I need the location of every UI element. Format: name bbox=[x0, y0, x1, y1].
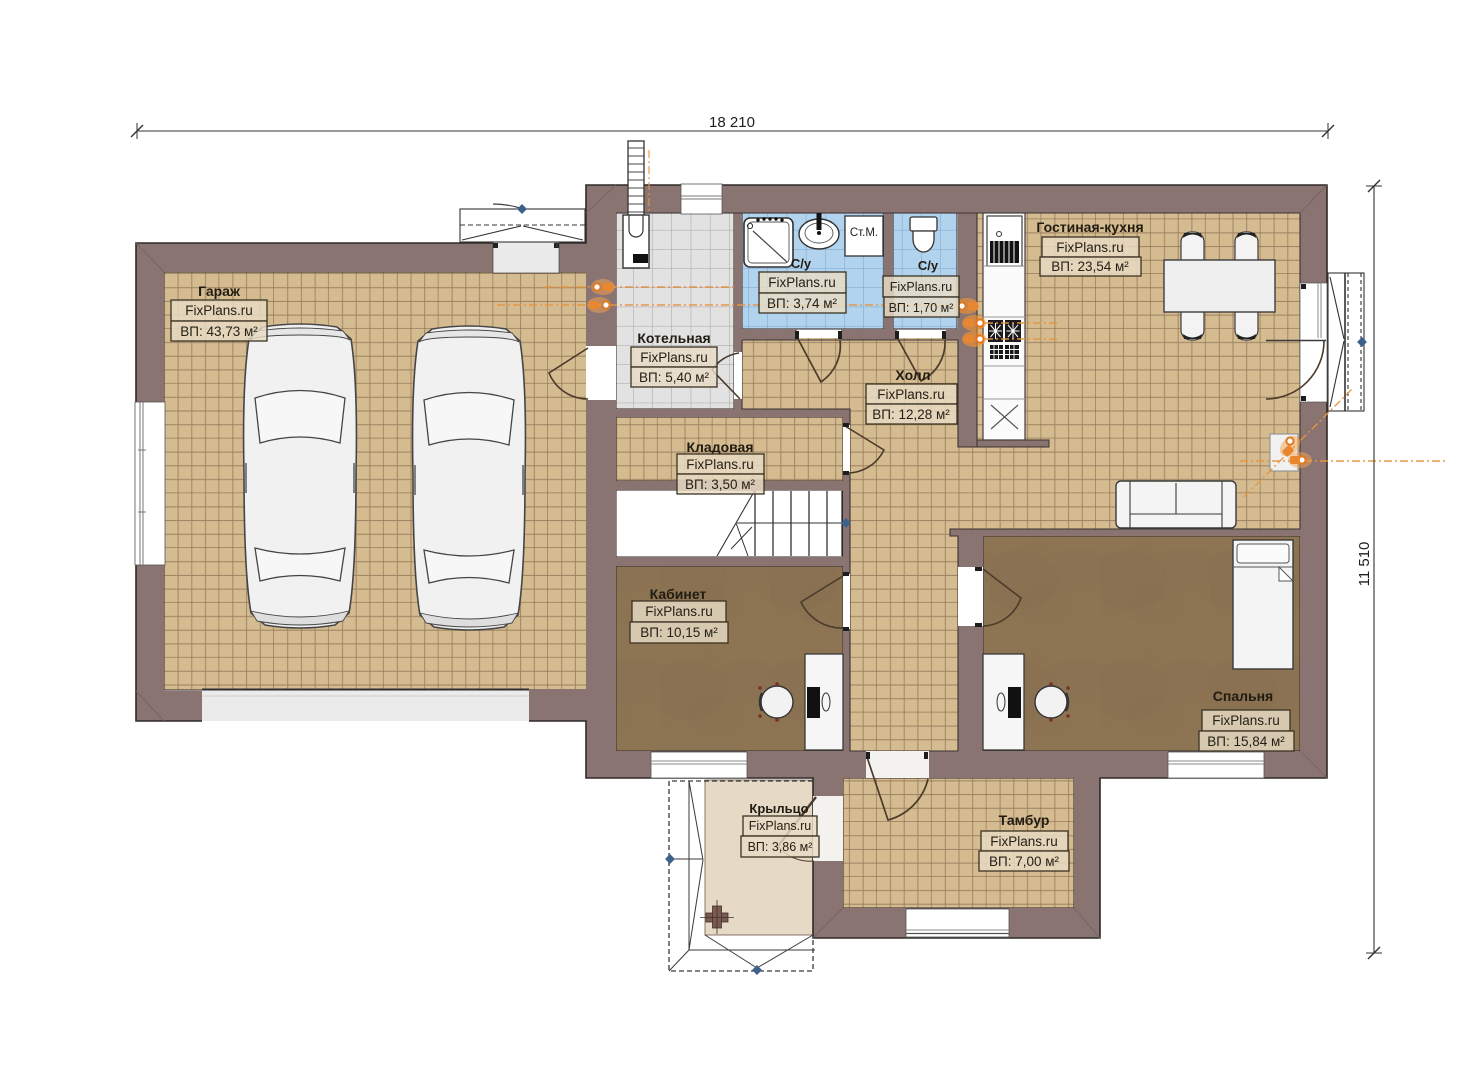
svg-text:Крыльцо: Крыльцо bbox=[749, 801, 808, 816]
svg-text:FixPlans.ru: FixPlans.ru bbox=[1212, 713, 1280, 728]
svg-text:Тамбур: Тамбур bbox=[999, 812, 1050, 828]
svg-text:FixPlans.ru: FixPlans.ru bbox=[640, 350, 708, 365]
svg-text:ВП: 5,40 м²: ВП: 5,40 м² bbox=[639, 370, 710, 385]
svg-text:С/у: С/у bbox=[918, 258, 939, 273]
svg-text:ВП: 23,54 м²: ВП: 23,54 м² bbox=[1051, 259, 1129, 274]
svg-text:ВП: 15,84 м²: ВП: 15,84 м² bbox=[1207, 734, 1285, 749]
svg-text:Кабинет: Кабинет bbox=[650, 586, 707, 602]
svg-text:FixPlans.ru: FixPlans.ru bbox=[768, 275, 836, 290]
svg-text:Спальня: Спальня bbox=[1213, 688, 1273, 704]
svg-text:18 210: 18 210 bbox=[709, 114, 755, 131]
svg-text:Кладовая: Кладовая bbox=[686, 439, 753, 455]
svg-text:ВП: 43,73 м²: ВП: 43,73 м² bbox=[180, 324, 258, 339]
svg-text:Гараж: Гараж bbox=[198, 283, 241, 299]
svg-text:ВП: 3,74 м²: ВП: 3,74 м² bbox=[767, 296, 838, 311]
svg-text:ВП: 10,15 м²: ВП: 10,15 м² bbox=[640, 625, 718, 640]
svg-text:Ст.М.: Ст.М. bbox=[850, 227, 878, 239]
svg-text:ВП: 7,00 м²: ВП: 7,00 м² bbox=[989, 854, 1060, 869]
svg-text:FixPlans.ru: FixPlans.ru bbox=[877, 387, 945, 402]
svg-text:FixPlans.ru: FixPlans.ru bbox=[990, 834, 1058, 849]
svg-text:ВП: 1,70 м²: ВП: 1,70 м² bbox=[889, 301, 954, 315]
svg-text:11 510: 11 510 bbox=[1356, 542, 1373, 587]
svg-text:FixPlans.ru: FixPlans.ru bbox=[185, 303, 253, 318]
svg-text:FixPlans.ru: FixPlans.ru bbox=[749, 819, 812, 833]
svg-text:FixPlans.ru: FixPlans.ru bbox=[1056, 240, 1124, 255]
svg-text:ВП: 3,50 м²: ВП: 3,50 м² bbox=[685, 477, 756, 492]
svg-text:Гостиная-кухня: Гостиная-кухня bbox=[1036, 219, 1143, 235]
svg-text:ВП: 3,86 м²: ВП: 3,86 м² bbox=[748, 840, 813, 854]
svg-text:Котельная: Котельная bbox=[637, 330, 710, 346]
svg-text:FixPlans.ru: FixPlans.ru bbox=[890, 280, 953, 294]
svg-text:С/у: С/у bbox=[791, 256, 812, 271]
svg-text:FixPlans.ru: FixPlans.ru bbox=[686, 457, 754, 472]
svg-text:FixPlans.ru: FixPlans.ru bbox=[645, 604, 713, 619]
svg-text:ВП: 12,28 м²: ВП: 12,28 м² bbox=[872, 407, 950, 422]
svg-text:Холл: Холл bbox=[895, 367, 930, 383]
